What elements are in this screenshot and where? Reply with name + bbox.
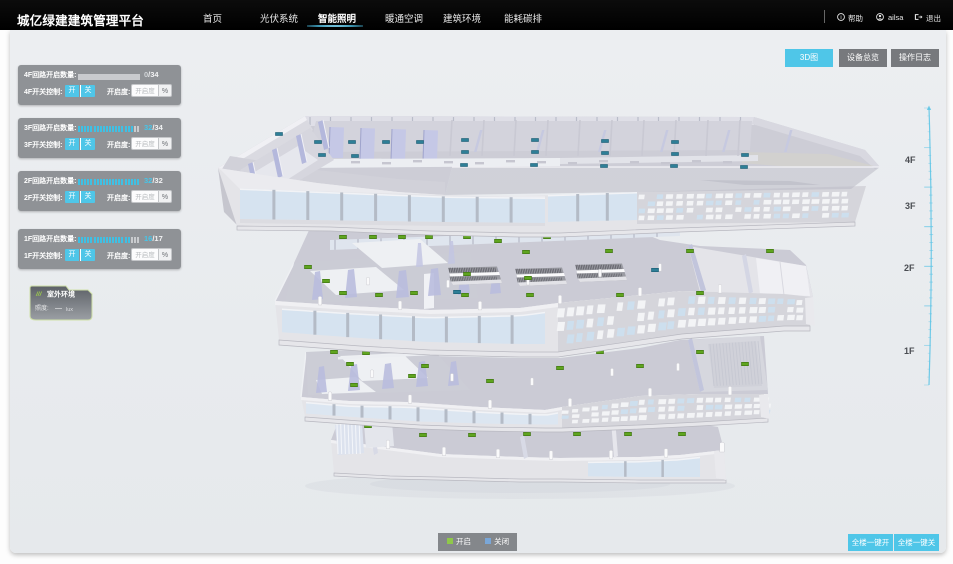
svg-text:室外环境: 室外环境 <box>47 290 75 299</box>
svg-text:lux: lux <box>66 307 73 313</box>
svg-text:照度:: 照度: <box>35 304 49 312</box>
svg-text:—: — <box>55 305 62 312</box>
